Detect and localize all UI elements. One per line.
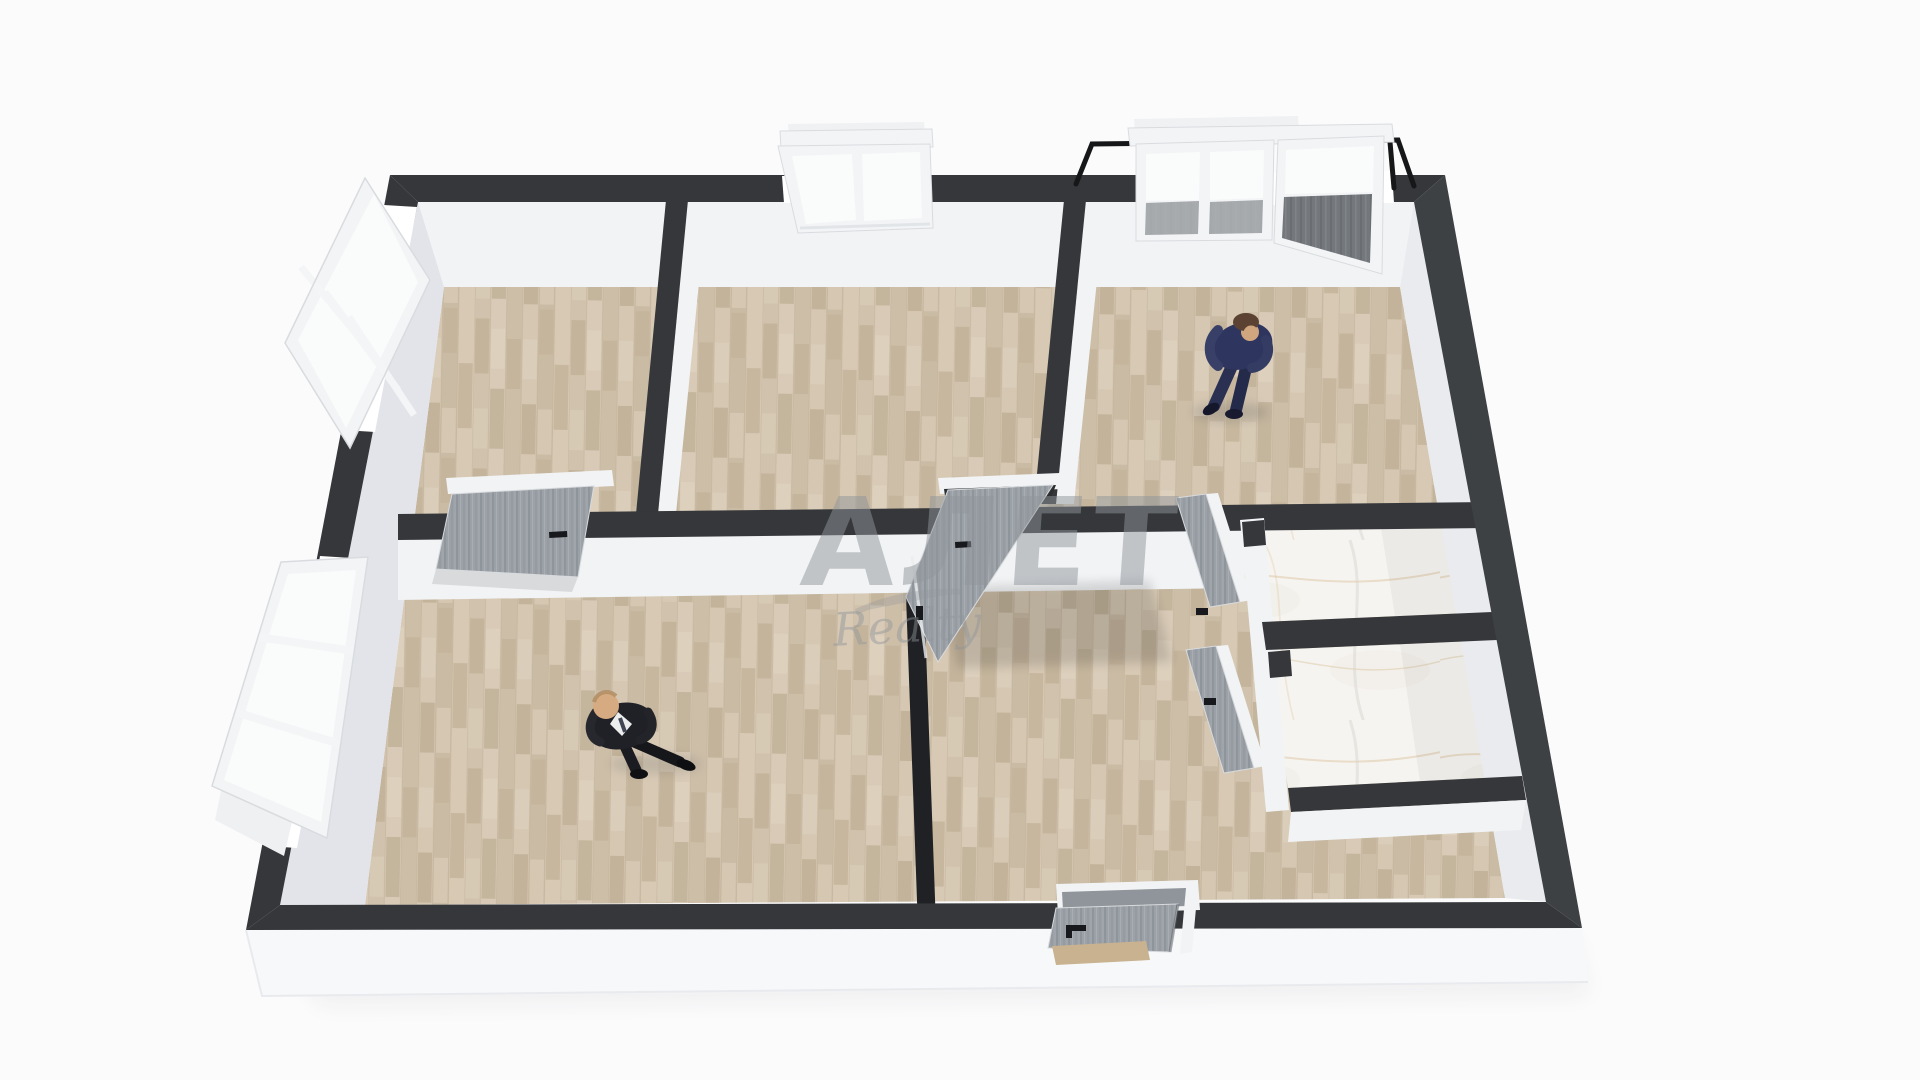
watermark-subtitle: Realty — [831, 595, 984, 657]
floor-plan-render: АЛЕТ Realty — [0, 0, 1920, 1080]
watermark-title: АЛЕТ — [797, 472, 1185, 614]
balcony-window — [1136, 140, 1274, 241]
window-top-middle — [778, 122, 933, 233]
south-wall — [246, 902, 1582, 930]
floor-plan-svg: АЛЕТ Realty — [0, 0, 1920, 1080]
